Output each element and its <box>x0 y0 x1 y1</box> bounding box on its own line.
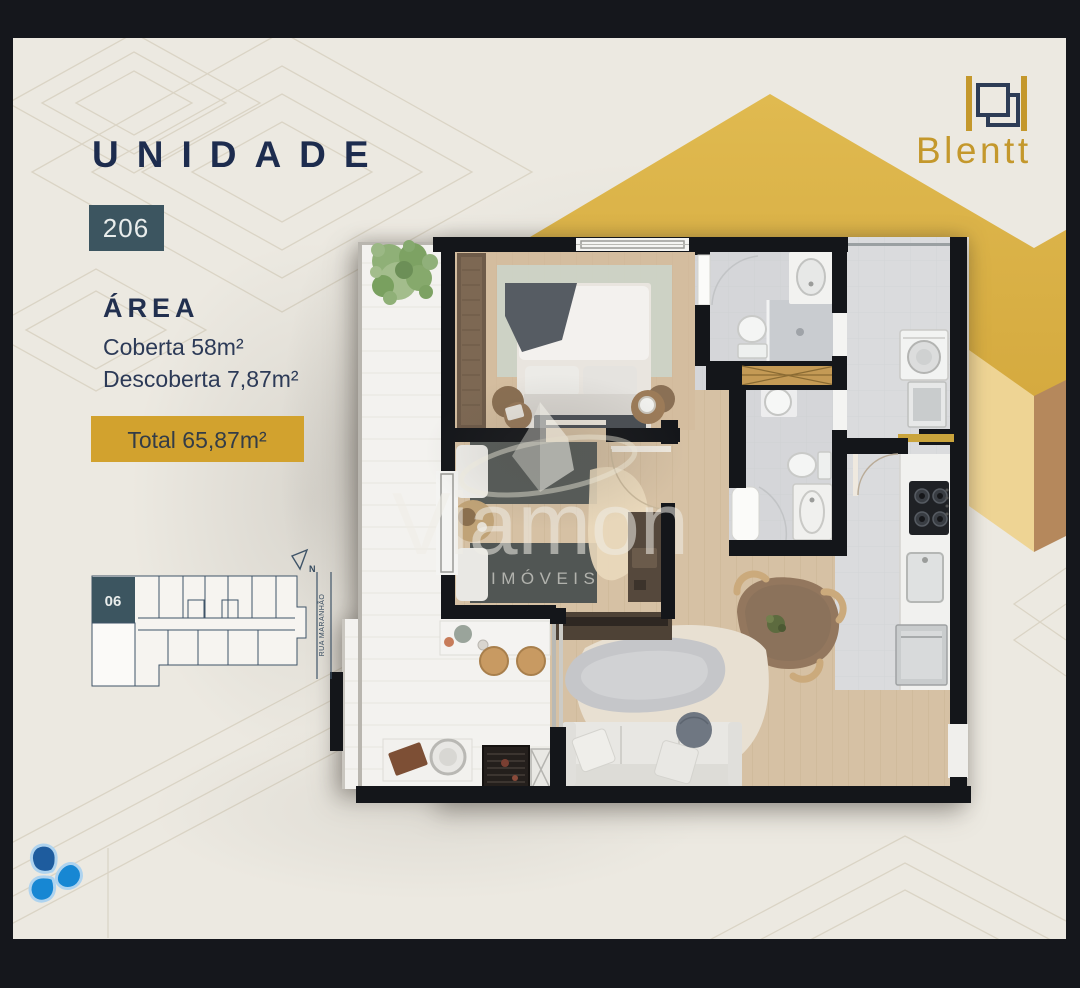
svg-text:Descoberta 7,87m²: Descoberta 7,87m² <box>103 366 299 392</box>
svg-text:ÁREA: ÁREA <box>103 292 200 323</box>
svg-text:UNIDADE: UNIDADE <box>92 134 387 175</box>
svg-text:206: 206 <box>103 213 149 243</box>
svg-text:Coberta 58m²: Coberta 58m² <box>103 334 244 360</box>
svg-text:IMÓVEIS: IMÓVEIS <box>491 569 600 588</box>
svg-text:Viamon: Viamon <box>392 474 689 573</box>
svg-text:Blentt: Blentt <box>916 130 1032 171</box>
svg-text:Total 65,87m²: Total 65,87m² <box>127 427 267 453</box>
svg-text:06: 06 <box>105 593 122 610</box>
svg-text:RUA MARANHÃO: RUA MARANHÃO <box>317 594 326 657</box>
svg-text:N: N <box>309 564 316 574</box>
